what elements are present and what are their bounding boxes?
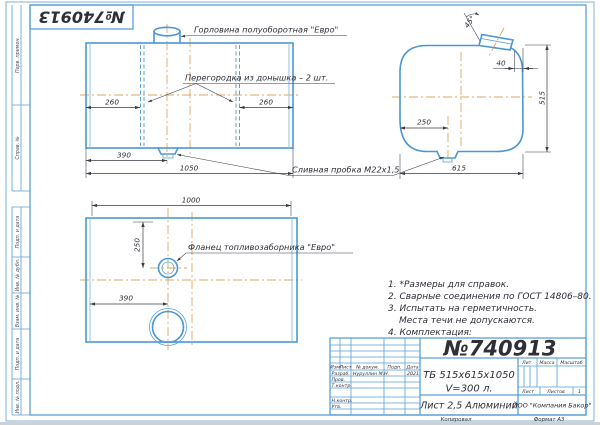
razrab-date: 2021	[407, 371, 419, 377]
dim-side-250: 250	[417, 118, 431, 127]
drain-callout: Сливная пробка М22х1,5	[177, 155, 444, 176]
callout-drain-plug: Сливная пробка М22х1,5	[292, 165, 400, 175]
margin-labels: Перв. примен. Справ. № Подп. и дата Инв.…	[15, 37, 21, 414]
drawing-sheet: Перв. примен. Справ. № Подп. и дата Инв.…	[0, 0, 600, 425]
front-view: 260 260 390 1050 Горловина полуоборотная…	[80, 24, 347, 178]
dim-bottom-250: 250	[133, 238, 142, 252]
company: ООО "Компания Бакор"	[513, 402, 592, 410]
note-2: 2. Сварные соединения по ГОСТ 14806–80.	[388, 292, 592, 302]
callout-neck: Горловина полуоборотная "Евро"	[194, 25, 338, 35]
col-data: Дата	[405, 365, 418, 371]
row-nkontr: Н.контр.	[332, 398, 353, 404]
row-prov: Пров.	[332, 377, 346, 383]
row-utv: Утв.	[332, 404, 342, 410]
dim-front-390: 390	[117, 151, 131, 160]
list-label: Лист	[521, 389, 534, 395]
margin-label-sprav-no: Справ. №	[15, 136, 21, 159]
fuel-tank-drawing: Перв. примен. Справ. № Подп. и дата Инв.…	[0, 0, 600, 425]
doc-number: №740913	[443, 337, 557, 361]
dim-front-260-left: 260	[105, 98, 119, 107]
corner-stamp-number: №740913	[38, 8, 125, 27]
listov-label: Листов	[546, 389, 565, 395]
col-list: Лист	[339, 365, 352, 371]
corner-stamp: №740913	[30, 5, 133, 29]
dim-bottom-390: 390	[119, 294, 133, 303]
margin-label-podp-data-1: Подп. и дата	[15, 216, 21, 249]
dim-side-615: 615	[452, 164, 466, 173]
row-razrab: Разраб.	[332, 371, 350, 377]
razrab-name: Нуруллин М.Н.	[353, 371, 389, 377]
massa-label: Масса	[540, 360, 555, 366]
technical-notes: 1. *Размеры для справок. 2. Сварные соед…	[388, 280, 592, 338]
margin-label-inv-dubl: Инв. № дубл.	[15, 259, 21, 292]
bottom-view: 1000 250 390 Фланец топливозаборника "Ев…	[80, 196, 353, 351]
note-3b: Места течи не допускаются.	[399, 316, 535, 326]
col-doc: № докум.	[355, 365, 379, 371]
callout-partition: Перегородка из донышка – 2 шт.	[185, 73, 328, 83]
margin-label-vzam-inv: Взам. инв. №	[15, 295, 21, 328]
listov-value: 1	[578, 389, 581, 395]
masshtab-label: Масштаб	[560, 360, 582, 366]
side-view: 45° 40 515 250 615	[392, 13, 551, 179]
lit-label: Лит.	[521, 360, 533, 366]
dim-bottom-1000: 1000	[182, 196, 201, 205]
dim-front-260-right: 260	[259, 98, 273, 107]
margin-label-inv-podl: Инв. № подл.	[15, 380, 21, 413]
title-block: №740913 ТБ 515х615х1050 V=300 л. Лист 2,…	[330, 337, 591, 416]
volume: V=300 л.	[445, 384, 492, 395]
row-tkontr: Т.контр.	[332, 383, 352, 389]
margin-label-perv-primen: Перв. примен.	[15, 37, 21, 73]
margin-label-podp-data-2: Подп. и дата	[15, 338, 21, 371]
dim-side-45deg: 45°	[462, 14, 477, 30]
material: Лист 2,5 Алюминий	[419, 401, 518, 412]
callout-flange: Фланец топливозаборника "Евро"	[188, 242, 335, 252]
designation: ТБ 515х615х1050	[423, 370, 515, 381]
dim-front-1050: 1050	[180, 164, 199, 173]
dim-side-515: 515	[538, 91, 547, 105]
note-3: 3. Испытать на герметичность.	[388, 304, 537, 314]
dim-side-40: 40	[496, 59, 506, 68]
note-1: 1. *Размеры для справок.	[388, 280, 509, 290]
col-podp: Подп.	[387, 365, 401, 371]
